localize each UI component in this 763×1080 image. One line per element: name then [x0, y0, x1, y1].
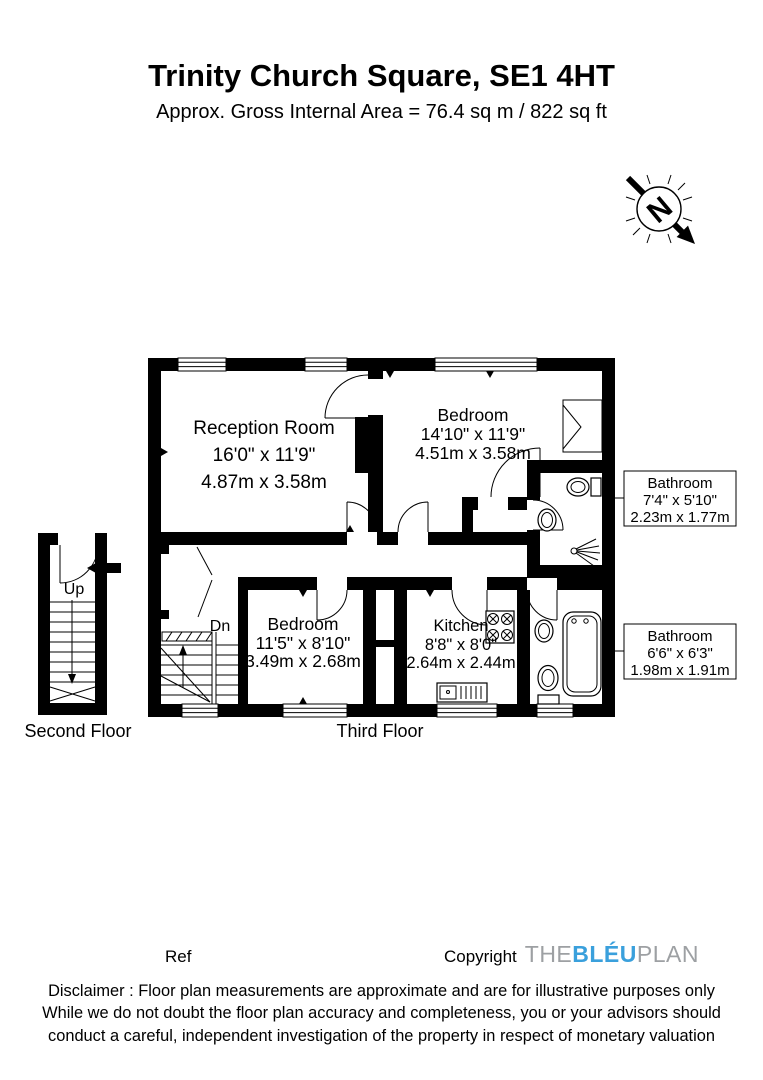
copyright-label: Copyright	[444, 947, 517, 967]
window	[178, 358, 226, 371]
second-floor-label: Second Floor	[24, 721, 131, 741]
third-floor-label: Third Floor	[336, 721, 423, 741]
bathroom2-fixtures	[535, 612, 601, 704]
window	[537, 704, 573, 717]
window	[435, 358, 537, 371]
bedroom1-name: Bedroom	[437, 405, 508, 425]
bathroom2-imperial: 6'6" x 6'3"	[647, 645, 713, 662]
copyright-row: Copyright THEBLÉUPLAN	[444, 941, 699, 968]
thebleuplan-logo: THEBLÉUPLAN	[525, 941, 699, 968]
second-floor-plan: Up Second Floor	[24, 533, 131, 741]
kitchen-imperial: 8'8" x 8'0"	[425, 636, 497, 654]
window	[305, 358, 347, 371]
logo-bleu: BLÉU	[572, 941, 637, 967]
bathroom2-name: Bathroom	[647, 628, 712, 645]
tower-door	[60, 545, 98, 583]
reception-name: Reception Room	[193, 418, 335, 439]
bedroom2-imperial: 11'5" x 8'10"	[256, 633, 351, 653]
floorplan-page: Trinity Church Square, SE1 4HT Approx. G…	[0, 0, 763, 1080]
window	[437, 704, 497, 717]
toilet-icon	[567, 478, 601, 496]
kitchen-metric: 2.64m x 2.44m	[406, 654, 515, 672]
bathtub-icon	[563, 612, 601, 696]
shower-icon	[571, 539, 600, 566]
window	[182, 704, 218, 717]
bedroom1-imperial: 14'10" x 11'9"	[421, 424, 525, 444]
wardrobe	[563, 400, 602, 452]
stairs-up	[50, 600, 95, 701]
stairs-down: Dn	[161, 618, 238, 704]
third-floor-plan: Dn	[148, 358, 615, 741]
logo-the: THE	[525, 941, 573, 967]
window	[283, 704, 347, 717]
bifold-door	[198, 580, 212, 617]
basin-icon	[535, 620, 553, 642]
bathroom1-fixtures	[538, 478, 601, 566]
ref-label: Ref	[165, 947, 191, 967]
reception-imperial: 16'0" x 11'9"	[213, 445, 316, 466]
stairs-down-label: Dn	[210, 618, 230, 635]
disclaimer-line-3: conduct a careful, independent investiga…	[0, 1025, 763, 1047]
sink-icon	[437, 683, 487, 702]
north-arrow-icon: N	[626, 175, 695, 244]
bathroom1-name: Bathroom	[647, 475, 712, 492]
bedroom2-name: Bedroom	[267, 614, 338, 634]
logo-plan: PLAN	[637, 941, 699, 967]
kitchen-name: Kitchen	[433, 617, 488, 635]
toilet-icon	[538, 666, 559, 705]
bedroom2-metric: 3.49m x 2.68m	[245, 651, 361, 671]
disclaimer-line-2: While we do not doubt the floor plan acc…	[0, 1002, 763, 1024]
bedroom1-metric: 4.51m x 3.58m	[415, 443, 531, 463]
disclaimer: Disclaimer : Floor plan measurements are…	[0, 980, 763, 1047]
disclaimer-line-1: Disclaimer : Floor plan measurements are…	[0, 980, 763, 1002]
basin-icon	[538, 509, 556, 531]
callout-bathroom1: Bathroom 7'4" x 5'10" 2.23m x 1.77m	[615, 471, 736, 526]
bifold-door	[197, 547, 212, 575]
bathroom1-metric: 2.23m x 1.77m	[630, 509, 729, 526]
callout-bathroom2: Bathroom 6'6" x 6'3" 1.98m x 1.91m	[615, 624, 736, 679]
bathroom1-imperial: 7'4" x 5'10"	[643, 492, 717, 509]
stairs-up-label: Up	[64, 581, 85, 598]
bathroom2-metric: 1.98m x 1.91m	[630, 662, 729, 679]
reception-metric: 4.87m x 3.58m	[201, 472, 327, 493]
floorplan-drawing: N	[0, 0, 763, 1080]
